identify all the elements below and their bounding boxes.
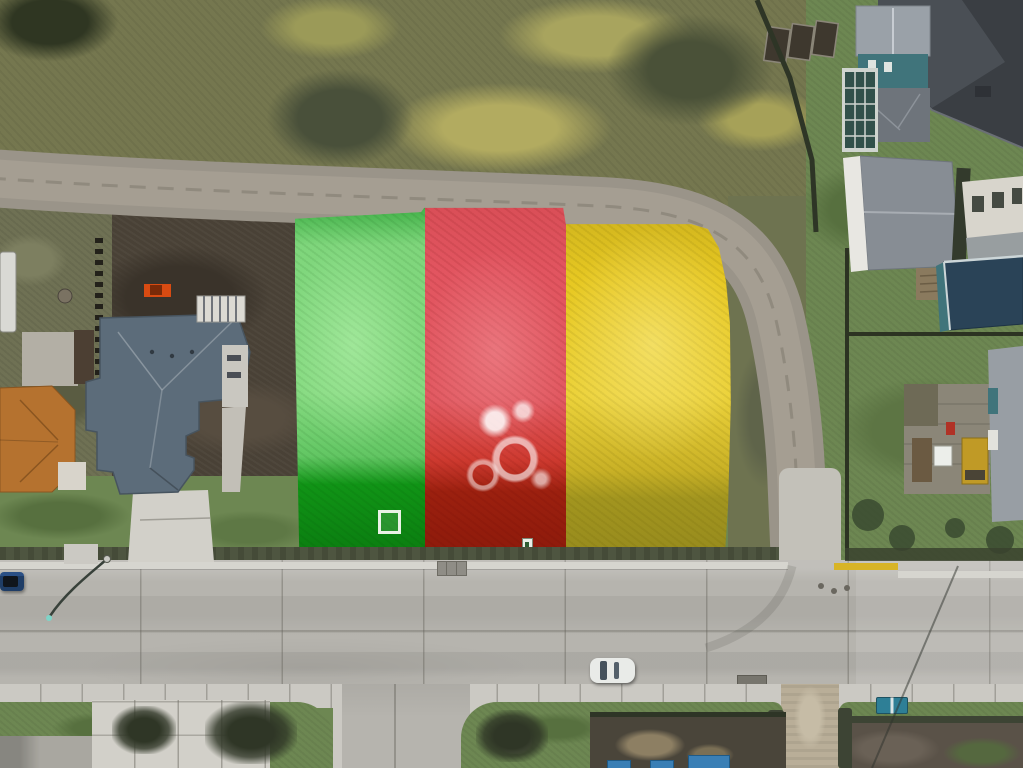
street-lamp: [104, 556, 111, 563]
greenhouse: [842, 68, 878, 152]
east-edge-house: [988, 346, 1023, 522]
lamp-shadow: [50, 559, 107, 616]
porch-steps: [58, 462, 86, 490]
red-item: [946, 422, 955, 435]
aerial-photo: [0, 0, 1023, 768]
side-walkway: [222, 406, 246, 492]
orange-tile-roof-house: [0, 386, 86, 492]
buildings-layer: [0, 0, 1023, 768]
west-driveway: [128, 490, 214, 562]
white-pergola: [197, 296, 245, 322]
south-hedge-row: [845, 548, 1023, 561]
patio-steps: [904, 384, 938, 426]
woodpile: [912, 438, 932, 482]
concrete-pad: [22, 332, 78, 386]
backyard-patio: [904, 384, 990, 494]
brown-shed: [74, 330, 94, 384]
chimney: [975, 86, 991, 97]
round-tank: [58, 289, 72, 303]
gray-roof-house: [843, 156, 971, 272]
front-walk: [64, 544, 98, 564]
orange-excavator: [144, 282, 171, 299]
white-box: [934, 446, 952, 466]
lamp-head-glow: [46, 615, 52, 621]
white-trailer: [0, 252, 16, 332]
backyard-bushes: [852, 499, 1014, 554]
tire-arc: [706, 566, 792, 648]
teal-house-greenhouse: [842, 6, 930, 152]
power-line-shadow: [872, 566, 958, 768]
